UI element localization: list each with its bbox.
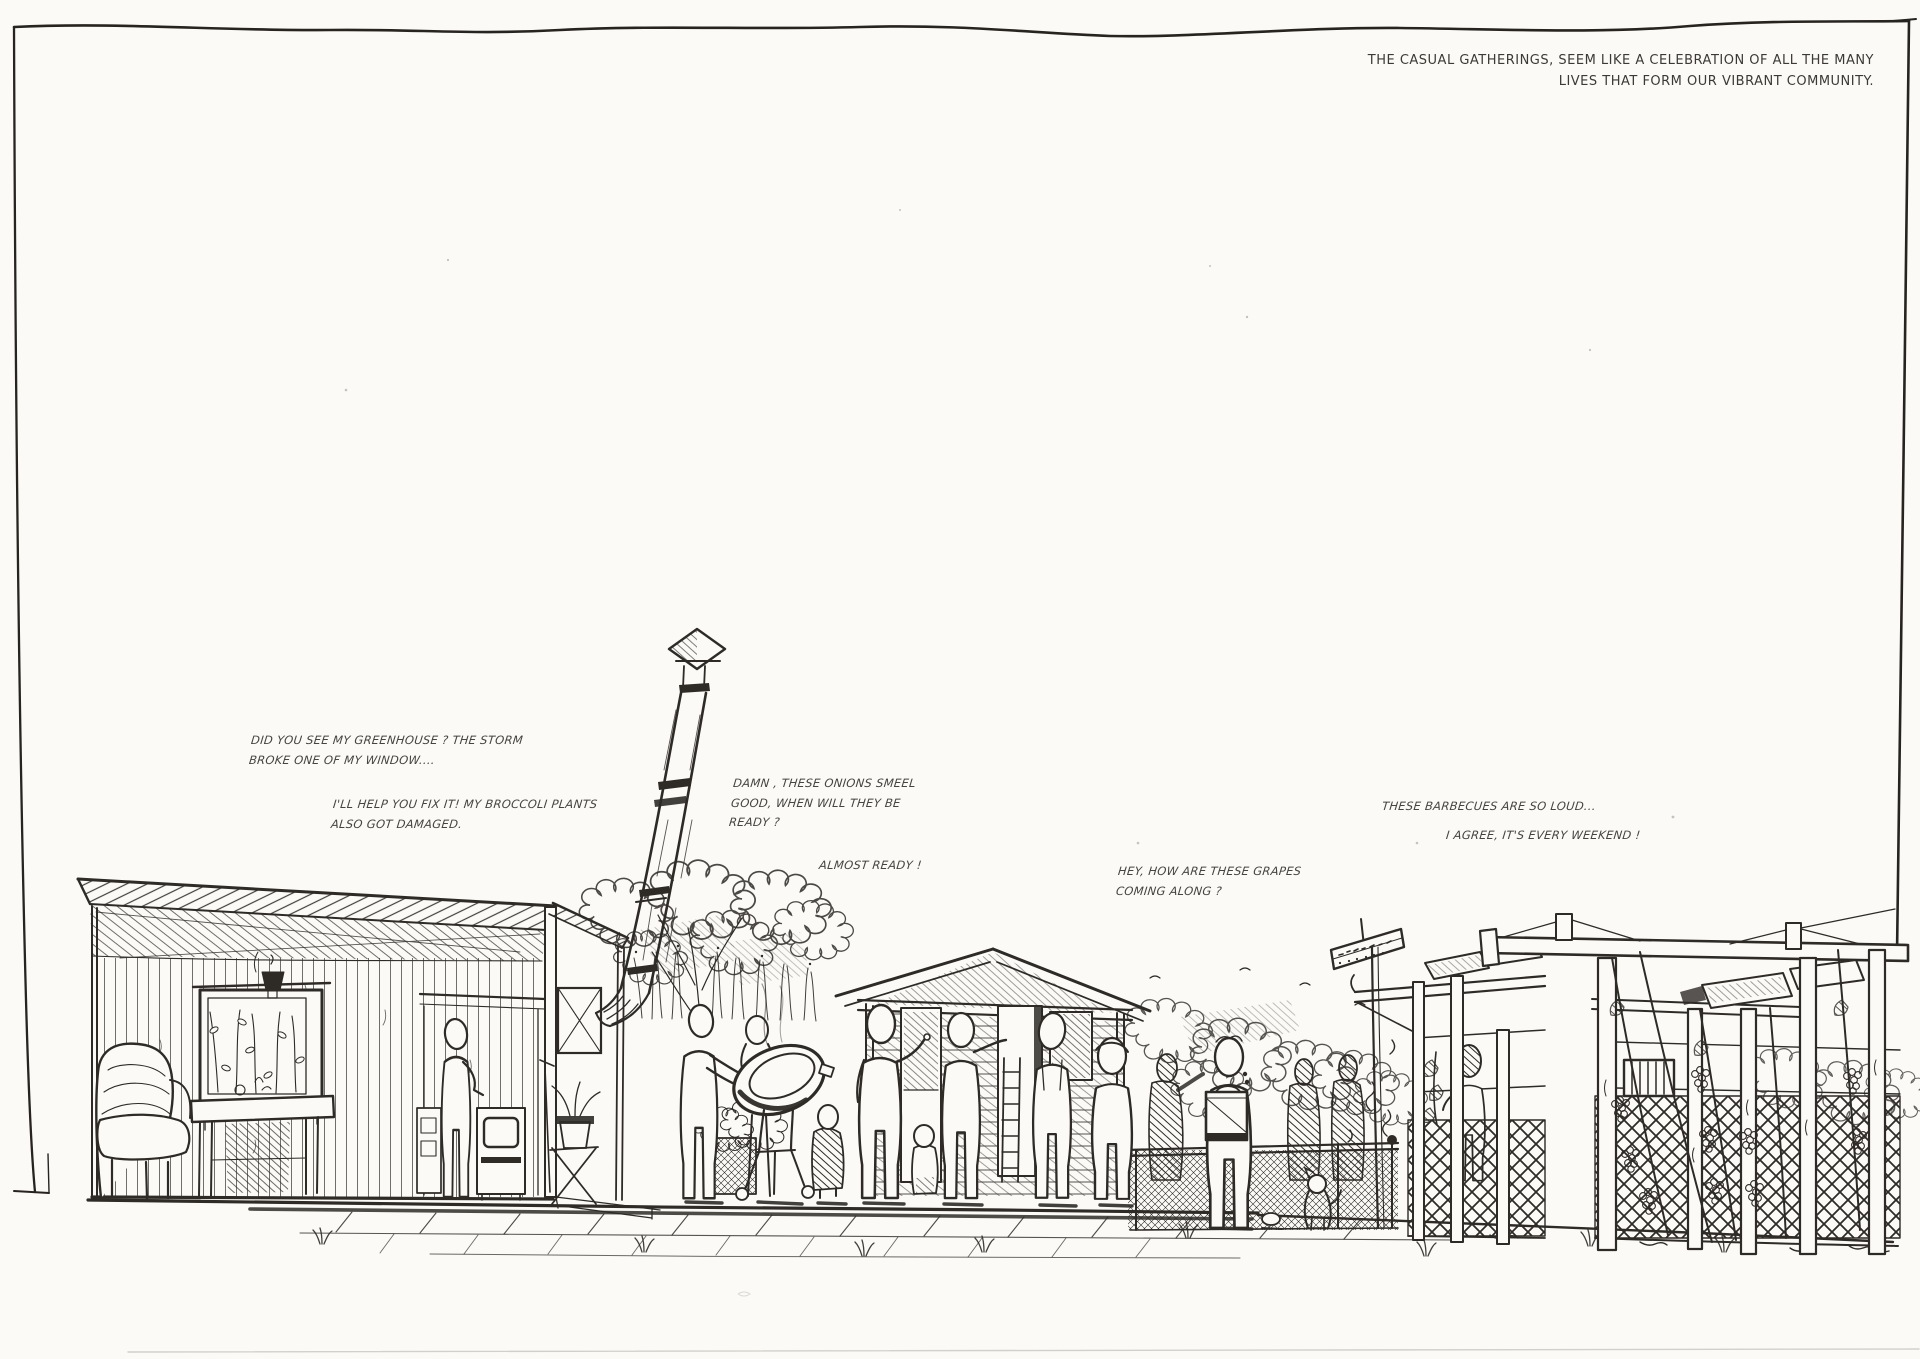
narrative-caption: THE CASUAL GATHERINGS, SEEM LIKE A CELEB… (1368, 50, 1874, 92)
speech-line: ALSO GOT DAMAGED. (330, 815, 596, 835)
lean-to-window (558, 988, 601, 1053)
storage-cabinet (417, 1108, 441, 1193)
speech-greenhouse: DID YOU SEE MY GREENHOUSE ? THE STORM BR… (248, 731, 524, 770)
potted-plant (550, 1082, 600, 1204)
speech-line: DID YOU SEE MY GREENHOUSE ? THE STORM (250, 731, 524, 751)
speech-line: COMING ALONG ? (1115, 882, 1300, 902)
speech-line: ALMOST READY ! (818, 856, 923, 876)
speech-line: I AGREE, IT'S EVERY WEEKEND ! (1445, 826, 1641, 846)
speech-onions: DAMN , THESE ONIONS SMEEL GOOD, WHEN WIL… (728, 774, 917, 833)
speech-weekend: I AGREE, IT'S EVERY WEEKEND ! (1445, 826, 1641, 846)
scan-speckles (345, 209, 1675, 844)
lean-to-roof (549, 903, 660, 1219)
wood-stove (477, 1108, 525, 1200)
speech-barbecues: THESE BARBECUES ARE SO LOUD... (1381, 797, 1597, 817)
speech-line: I'LL HELP YOU FIX IT! MY BROCCOLI PLANTS (332, 795, 598, 815)
speech-line: GOOD, WHEN WILL THEY BE (730, 794, 915, 814)
speech-fix-it: I'LL HELP YOU FIX IT! MY BROCCOLI PLANTS… (330, 795, 598, 834)
pergola-right (1480, 909, 1920, 1254)
speech-almost-ready: ALMOST READY ! (818, 856, 923, 876)
garden-community-sketch (0, 0, 1920, 1359)
speech-line: HEY, HOW ARE THESE GRAPES (1117, 862, 1302, 882)
speech-line: DAMN , THESE ONIONS SMEEL (732, 774, 917, 794)
mesh-fence (1126, 1135, 1398, 1230)
barbecue-group (681, 984, 844, 1200)
caption-line-1: THE CASUAL GATHERINGS, SEEM LIKE A CELEB… (1368, 50, 1874, 71)
toddler-figure (912, 1125, 938, 1194)
speech-line: THESE BARBECUES ARE SO LOUD... (1381, 797, 1597, 817)
speech-grapes: HEY, HOW ARE THESE GRAPES COMING ALONG ? (1115, 862, 1302, 901)
garden-shed-section (78, 879, 556, 1201)
sketch-page: THE CASUAL GATHERINGS, SEEM LIKE A CELEB… (0, 0, 1920, 1359)
pencil-smudge (738, 1292, 750, 1296)
speech-line: READY ? (728, 813, 913, 833)
speech-line: BROKE ONE OF MY WINDOW.... (248, 751, 522, 771)
child-figure (812, 1105, 844, 1198)
caption-line-2: LIVES THAT FORM OUR VIBRANT COMMUNITY. (1368, 71, 1874, 92)
step (556, 1197, 660, 1219)
